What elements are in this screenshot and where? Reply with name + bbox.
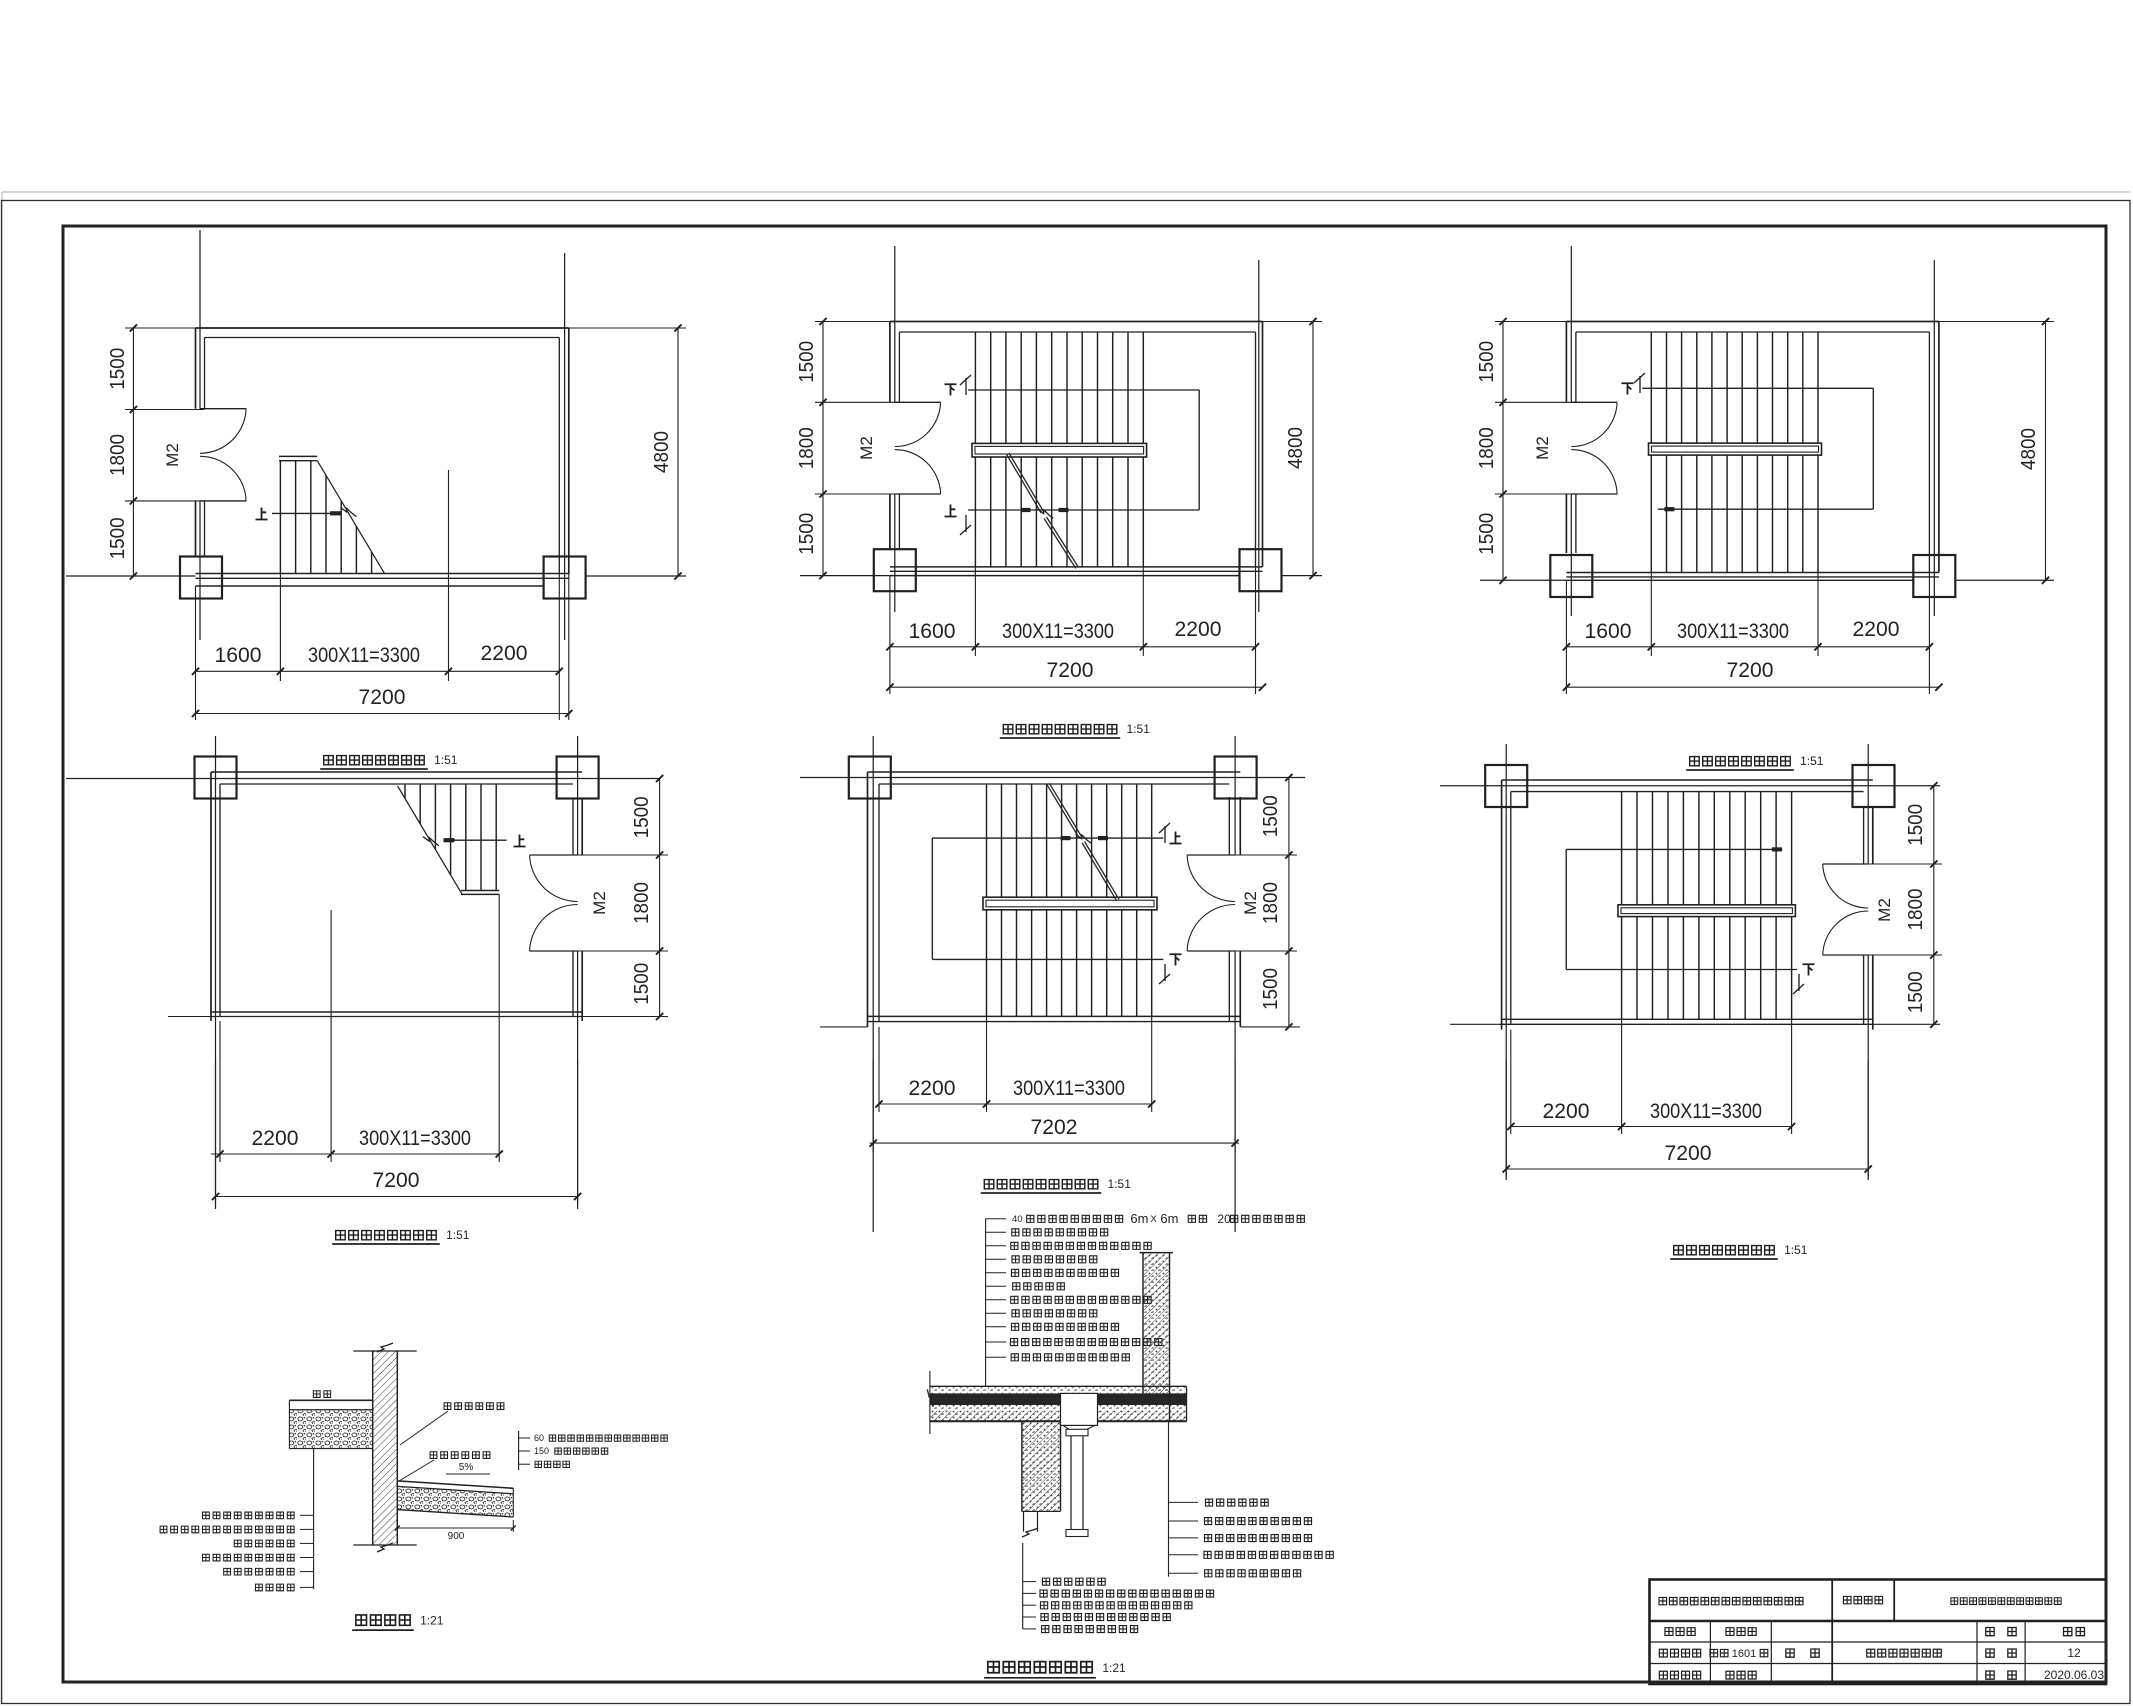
svg-text:7200: 7200 <box>359 686 406 709</box>
svg-text:7200: 7200 <box>1727 659 1774 682</box>
svg-text:4800: 4800 <box>2018 428 2040 470</box>
svg-text:M2: M2 <box>163 443 182 467</box>
svg-text:X: X <box>1150 1214 1157 1225</box>
svg-text:1800: 1800 <box>1476 427 1498 469</box>
svg-text:M2: M2 <box>1533 436 1552 460</box>
svg-text:7200: 7200 <box>1665 1142 1712 1165</box>
svg-text:1500: 1500 <box>796 341 818 383</box>
svg-text:1:51: 1:51 <box>434 753 458 767</box>
svg-text:900: 900 <box>448 1531 465 1542</box>
svg-text:6m: 6m <box>1130 1211 1148 1226</box>
svg-text:1800: 1800 <box>1905 889 1927 931</box>
svg-text:1:21: 1:21 <box>1102 1661 1126 1675</box>
svg-text:6m: 6m <box>1160 1211 1178 1226</box>
svg-text:1800: 1800 <box>631 882 653 924</box>
svg-text:1:51: 1:51 <box>446 1228 470 1242</box>
svg-text:2200: 2200 <box>1853 618 1900 641</box>
svg-text:1601: 1601 <box>1732 1648 1756 1660</box>
svg-text:5%: 5% <box>459 1462 474 1473</box>
svg-text:1500: 1500 <box>631 796 653 838</box>
svg-text:1500: 1500 <box>1905 804 1927 846</box>
svg-text:300X11=3300: 300X11=3300 <box>308 644 420 667</box>
svg-text:1500: 1500 <box>1260 795 1282 837</box>
svg-text:300X11=3300: 300X11=3300 <box>1002 620 1114 643</box>
svg-text:1:51: 1:51 <box>1800 754 1824 768</box>
svg-text:1800: 1800 <box>1260 882 1282 924</box>
svg-text:60: 60 <box>534 1433 544 1443</box>
svg-text:1:51: 1:51 <box>1127 722 1151 736</box>
svg-text:2200: 2200 <box>1543 1100 1590 1123</box>
svg-text:1600: 1600 <box>215 644 262 667</box>
svg-text:1600: 1600 <box>1585 620 1632 643</box>
svg-text:2020.06.03: 2020.06.03 <box>2044 1668 2104 1682</box>
svg-text:M2: M2 <box>590 891 609 915</box>
svg-text:1500: 1500 <box>1905 971 1927 1013</box>
svg-text:1500: 1500 <box>796 513 818 555</box>
svg-text:M2: M2 <box>1241 891 1260 915</box>
svg-text:2200: 2200 <box>1175 618 1222 641</box>
svg-text:7202: 7202 <box>1031 1116 1078 1139</box>
svg-text:1600: 1600 <box>909 620 956 643</box>
svg-text:300X11=3300: 300X11=3300 <box>1677 620 1789 643</box>
svg-text:4800: 4800 <box>651 431 673 473</box>
svg-text:4800: 4800 <box>1285 427 1307 469</box>
svg-text:1:21: 1:21 <box>420 1614 444 1628</box>
svg-text:7200: 7200 <box>1047 659 1094 682</box>
svg-text:1500: 1500 <box>107 517 129 559</box>
svg-text:2200: 2200 <box>481 642 528 665</box>
svg-text:12: 12 <box>2067 1646 2081 1660</box>
svg-text:300X11=3300: 300X11=3300 <box>1650 1100 1762 1123</box>
svg-text:300X11=3300: 300X11=3300 <box>1013 1077 1125 1100</box>
svg-text:300X11=3300: 300X11=3300 <box>359 1127 471 1150</box>
svg-text:2200: 2200 <box>909 1077 956 1100</box>
svg-text:1500: 1500 <box>107 348 129 390</box>
svg-text:7200: 7200 <box>373 1169 420 1192</box>
svg-text:1500: 1500 <box>1476 513 1498 555</box>
svg-text:M2: M2 <box>857 436 876 460</box>
svg-text:M2: M2 <box>1875 898 1894 922</box>
svg-text:1800: 1800 <box>796 427 818 469</box>
svg-text:40: 40 <box>1012 1214 1023 1225</box>
svg-text:1500: 1500 <box>1260 968 1282 1010</box>
svg-text:1:51: 1:51 <box>1108 1177 1132 1191</box>
svg-text:1500: 1500 <box>1476 341 1498 383</box>
svg-text:1500: 1500 <box>631 963 653 1005</box>
svg-text:2200: 2200 <box>252 1127 299 1150</box>
svg-text:1800: 1800 <box>107 434 129 476</box>
svg-text:150: 150 <box>534 1446 549 1456</box>
svg-text:1:51: 1:51 <box>1784 1243 1808 1257</box>
